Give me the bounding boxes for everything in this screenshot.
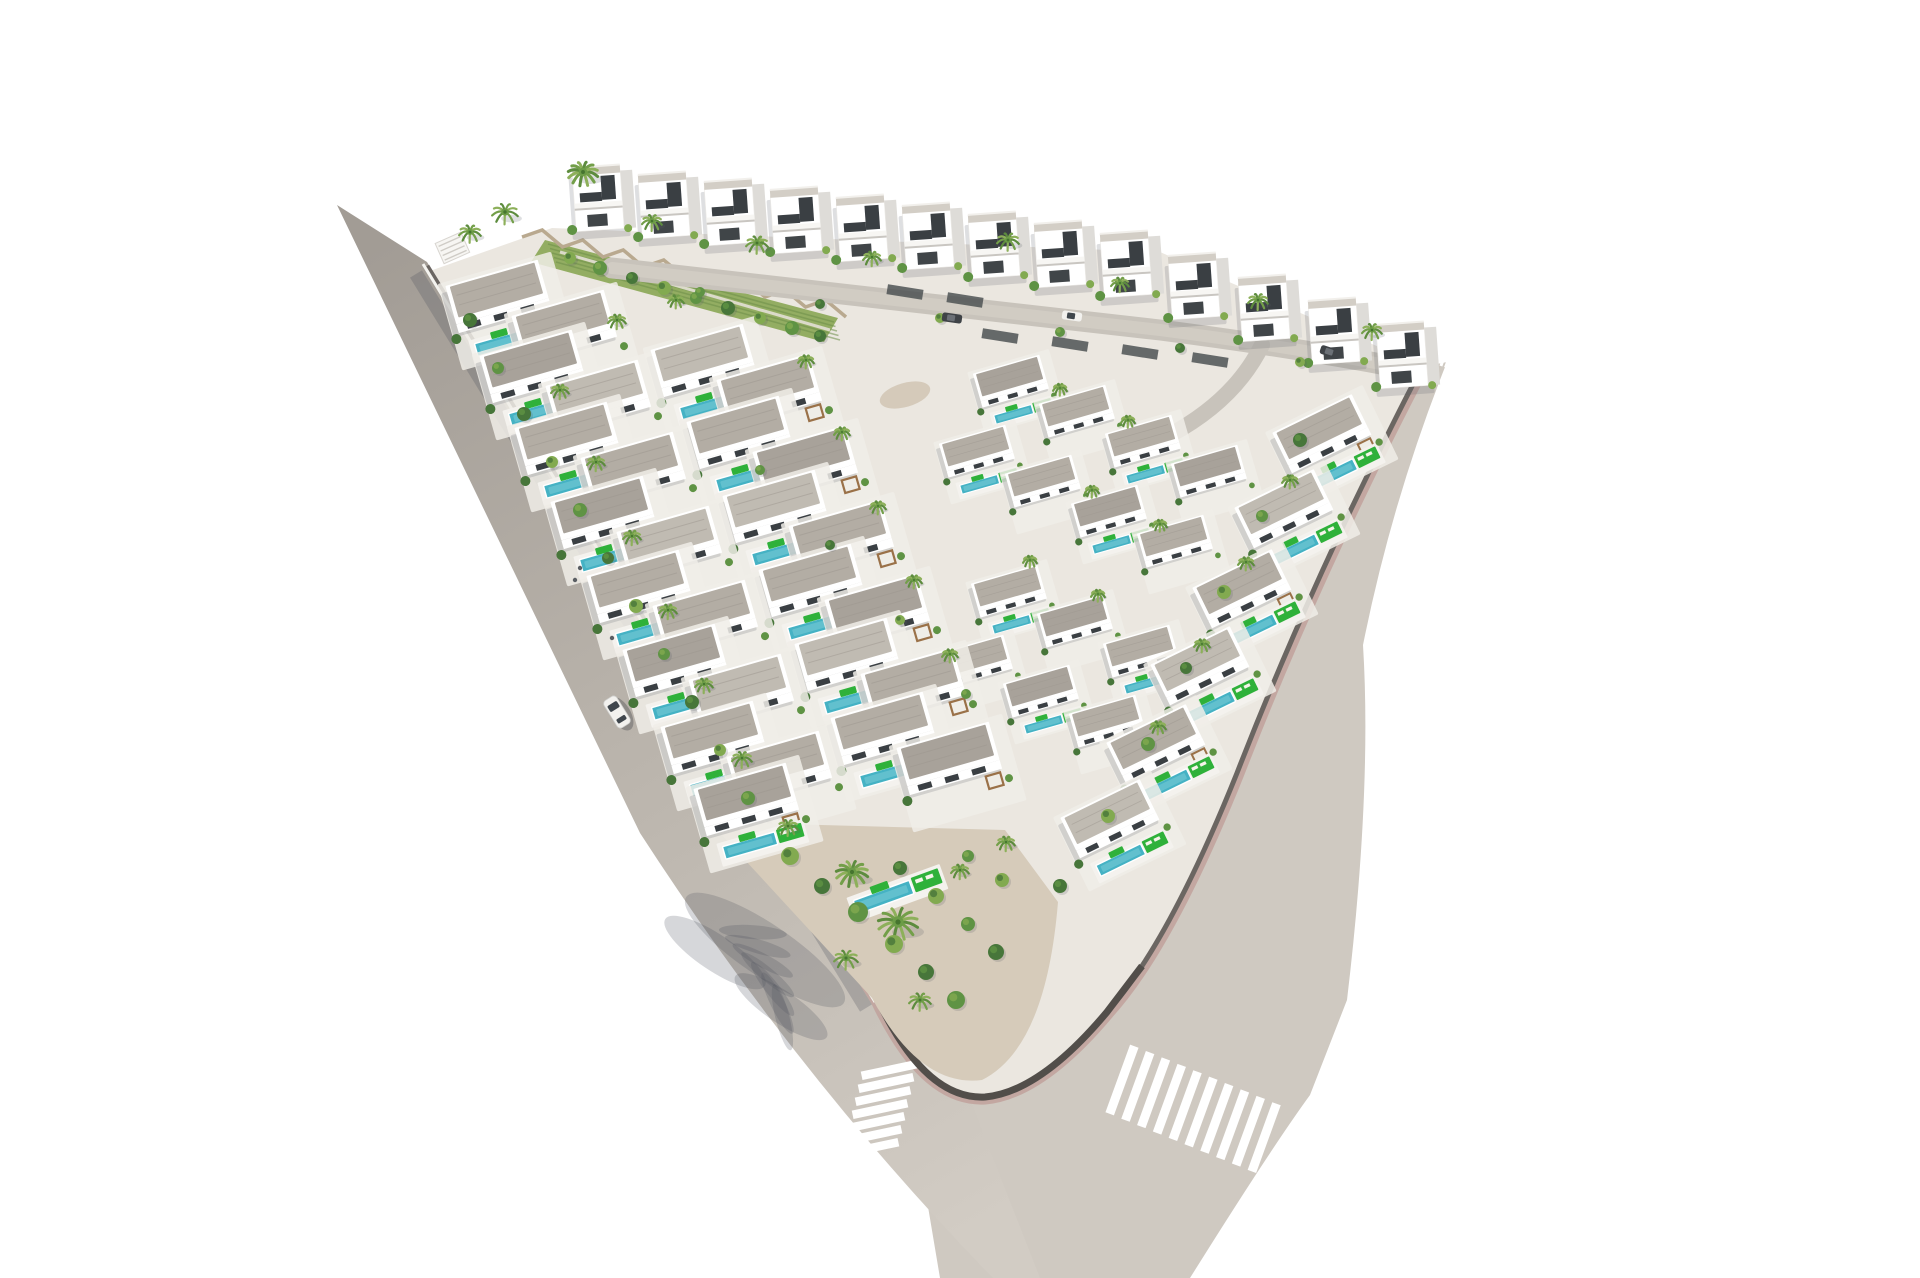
shrub-highlight — [1296, 358, 1301, 363]
shrub-highlight — [696, 288, 701, 293]
palm-crown-center — [1201, 643, 1203, 645]
window — [600, 175, 616, 200]
palm-tree — [492, 204, 522, 224]
shrub-highlight — [997, 875, 1003, 881]
shrub-highlight — [566, 254, 571, 259]
shrub-highlight — [723, 303, 729, 309]
window — [1062, 231, 1078, 256]
palm-crown-center — [1157, 725, 1159, 727]
palm-crown-center — [1257, 299, 1260, 302]
palm-crown-center — [1245, 561, 1247, 563]
shrub-highlight — [1143, 739, 1149, 745]
palm-crown-center — [1007, 239, 1010, 242]
window — [1128, 241, 1144, 266]
palm-crown-center — [1159, 523, 1161, 525]
two-story-villa — [761, 186, 835, 263]
window — [930, 213, 946, 238]
shrub-highlight — [1182, 664, 1187, 669]
palm-tree — [459, 225, 484, 242]
shrub-highlight — [851, 905, 860, 914]
palm-crown-center — [703, 683, 705, 685]
shrub-highlight — [816, 332, 821, 337]
palm-crown-center — [1289, 479, 1291, 481]
aerial-3d-render — [0, 0, 1920, 1278]
palm-crown-center — [741, 757, 744, 760]
glass-door — [785, 236, 806, 249]
shrub-highlight — [756, 466, 761, 471]
window — [1384, 349, 1407, 360]
window — [712, 206, 735, 217]
palm-crown-center — [503, 210, 506, 213]
palm-crown-center — [919, 999, 922, 1002]
palm-crown-center — [1091, 489, 1093, 491]
palm-crown-center — [1005, 841, 1007, 843]
window — [1108, 258, 1131, 269]
shrub-highlight — [1103, 811, 1109, 817]
palm-crown-center — [895, 919, 900, 924]
window — [580, 192, 603, 203]
two-story-villa — [1025, 220, 1099, 297]
shrub-highlight — [816, 880, 823, 887]
palm-crown-center — [949, 653, 951, 655]
palm-crown-center — [1059, 387, 1061, 389]
palm-crown-center — [841, 431, 843, 433]
two-story-villa — [893, 202, 967, 279]
shrub-highlight — [756, 314, 761, 319]
glass-door — [1183, 302, 1204, 315]
car-glass — [947, 314, 956, 321]
window — [1316, 325, 1339, 336]
shrub-highlight — [816, 300, 821, 305]
palm-crown-center — [913, 579, 915, 581]
glass-door — [917, 252, 938, 265]
shrub-highlight — [1219, 587, 1225, 593]
shrub-highlight — [548, 458, 553, 463]
palm-crown-center — [1371, 329, 1374, 332]
two-story-villa — [959, 211, 1033, 288]
window — [778, 214, 801, 225]
shrub-highlight — [660, 650, 665, 655]
window — [798, 197, 814, 222]
palm-crown-center — [595, 461, 597, 463]
aerial-render-canvas — [0, 0, 1920, 1278]
shrub-highlight — [628, 274, 633, 279]
shrub-highlight — [716, 746, 721, 751]
shrub-highlight — [787, 323, 793, 329]
palm-crown-center — [787, 825, 790, 828]
window — [910, 230, 933, 241]
shrub-highlight — [1295, 435, 1301, 441]
glass-door — [1253, 324, 1274, 337]
glass-door — [1049, 270, 1070, 283]
palm-crown-center — [844, 956, 847, 959]
car-glass — [1067, 312, 1076, 319]
palm-crown-center — [1029, 559, 1031, 561]
shrub-highlight — [962, 690, 967, 695]
palm-crown-center — [805, 359, 807, 361]
pedestrian — [573, 578, 577, 582]
shrub-highlight — [631, 601, 637, 607]
palm-crown-center — [651, 220, 654, 223]
shrub-highlight — [743, 793, 749, 799]
palm-crown-center — [756, 242, 759, 245]
window — [732, 189, 748, 214]
two-story-villa — [1159, 252, 1233, 329]
palm-crown-center — [959, 869, 961, 871]
shrub-highlight — [595, 263, 601, 269]
pedestrian — [610, 636, 614, 640]
window — [666, 182, 682, 207]
palm-crown-center — [850, 870, 854, 874]
window — [646, 199, 669, 210]
shrub-highlight — [887, 937, 895, 945]
shrub-highlight — [659, 283, 665, 289]
shrub-highlight — [963, 919, 969, 925]
shrub-highlight — [465, 315, 471, 321]
shrub-highlight — [896, 616, 901, 621]
pedestrian — [578, 566, 582, 570]
palm-crown-center — [631, 535, 633, 537]
shrub-highlight — [687, 697, 693, 703]
shrub-highlight — [895, 863, 901, 869]
palm-crown-center — [877, 505, 879, 507]
shrub-highlight — [930, 890, 937, 897]
shrub-highlight — [783, 849, 791, 857]
window — [1176, 280, 1199, 291]
glass-door — [719, 228, 740, 241]
palm-crown-center — [667, 609, 669, 611]
window — [1196, 263, 1212, 288]
palm-crown-center — [559, 389, 561, 391]
two-story-villa — [1091, 230, 1165, 307]
shrub-highlight — [949, 993, 957, 1001]
palm-crown-center — [1097, 593, 1099, 595]
window — [1336, 308, 1352, 333]
shrub-highlight — [1258, 512, 1263, 517]
glass-door — [983, 261, 1004, 274]
shrub-highlight — [1176, 344, 1181, 349]
two-story-villa — [1299, 297, 1373, 374]
shrub-highlight — [1056, 328, 1061, 333]
two-story-villa — [629, 171, 703, 248]
palm-crown-center — [871, 256, 873, 258]
shrub-highlight — [1055, 881, 1061, 887]
shrub-highlight — [936, 314, 941, 319]
window — [976, 239, 999, 250]
palm-crown-center — [675, 299, 677, 301]
shrub-highlight — [990, 946, 997, 953]
window — [1404, 332, 1420, 357]
shrub-highlight — [964, 852, 969, 857]
palm-crown-center — [581, 170, 585, 174]
window — [864, 205, 880, 230]
window — [1042, 248, 1065, 259]
glass-door — [587, 214, 608, 227]
glass-door — [1391, 371, 1412, 384]
two-story-villa — [1229, 274, 1303, 351]
palm-crown-center — [469, 231, 472, 234]
shrub-highlight — [494, 364, 499, 369]
shrub-highlight — [920, 966, 927, 973]
shrub-highlight — [519, 409, 525, 415]
shrub-highlight — [604, 554, 609, 559]
shrub-highlight — [575, 505, 581, 511]
window — [844, 222, 867, 233]
shrub-highlight — [826, 541, 831, 546]
palm-crown-center — [616, 319, 618, 321]
palm-crown-center — [1127, 419, 1129, 421]
palm-crown-center — [1119, 282, 1121, 284]
